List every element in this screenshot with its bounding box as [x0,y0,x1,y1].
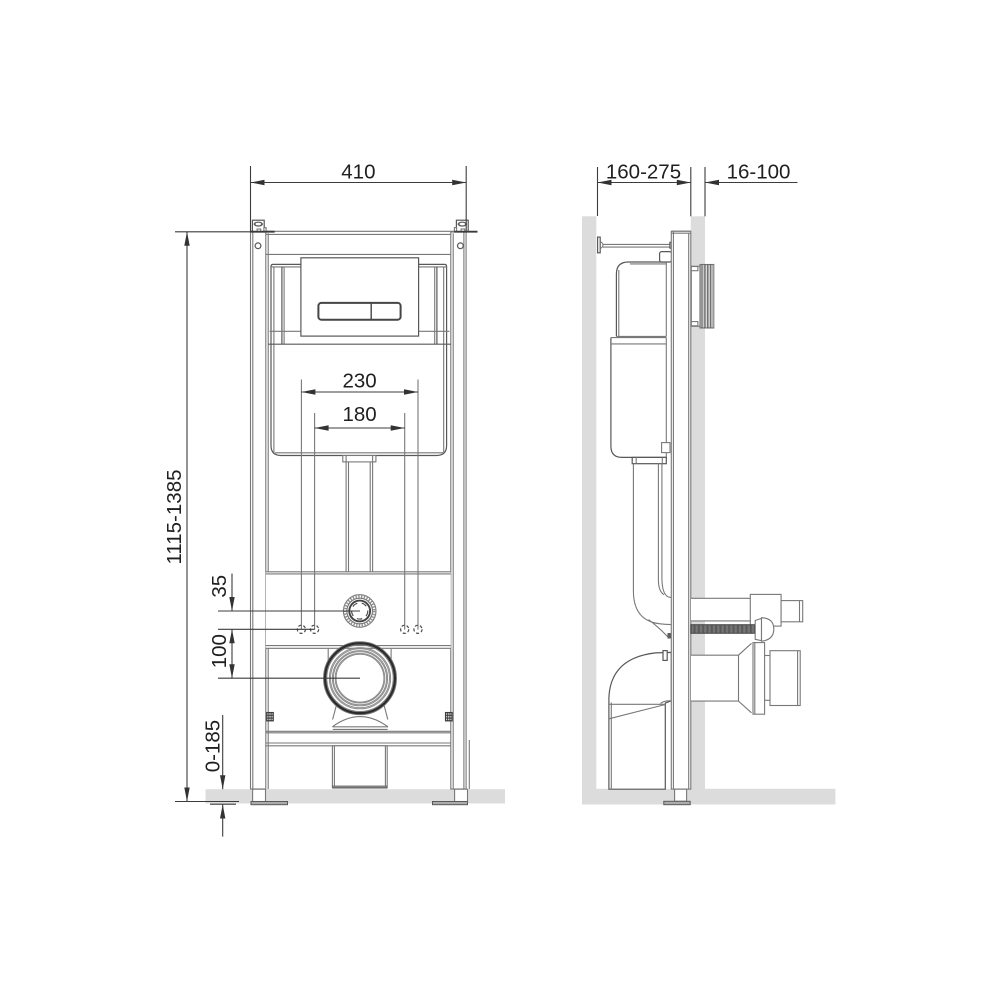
svg-text:0-185: 0-185 [201,720,224,772]
svg-text:160-275: 160-275 [606,161,681,184]
svg-text:410: 410 [341,161,375,184]
svg-text:180: 180 [342,403,376,426]
svg-text:16-100: 16-100 [727,161,791,184]
svg-text:230: 230 [342,370,376,393]
svg-text:35: 35 [208,575,231,598]
svg-text:1115-1385: 1115-1385 [163,470,186,565]
svg-text:100: 100 [208,634,231,668]
